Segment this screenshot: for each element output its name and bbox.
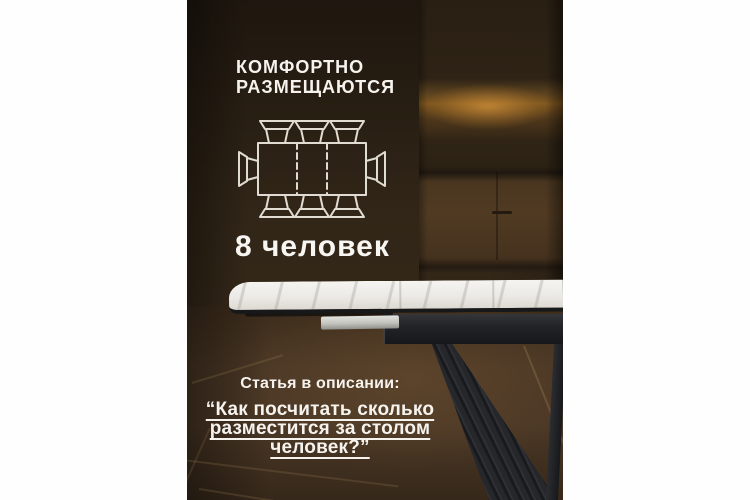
right-margin — [563, 0, 750, 500]
capacity-label: 8 человек — [235, 230, 390, 264]
article-intro: Статья в описании: — [195, 374, 445, 393]
cabinet-panel-seam — [496, 172, 498, 260]
article-quote-line3: человек?” — [195, 438, 445, 457]
article-quote: “Как посчитать сколько разместится за ст… — [195, 400, 445, 457]
article-note: Статья в описании: “Как посчитать скольк… — [195, 374, 445, 457]
headline-line1: КОМФОРТНО — [236, 57, 395, 77]
ceramic-tabletop — [229, 280, 563, 314]
headline-line2: РАЗМЕЩАЮТСЯ — [236, 77, 395, 97]
chair-left — [239, 152, 258, 186]
chairs-top — [260, 121, 364, 143]
article-quote-line2: разместится за столом — [195, 419, 445, 438]
left-margin — [0, 0, 187, 500]
chairs-bottom — [260, 195, 364, 217]
kitchen-cabinet — [419, 0, 563, 314]
table-seating-icon — [237, 119, 387, 219]
poster-canvas: КОМФОРТНО РАЗМЕЩАЮТСЯ — [0, 0, 750, 500]
extension-rail — [321, 315, 399, 329]
article-quote-line1: “Как посчитать сколько — [195, 400, 445, 419]
table-underframe — [383, 314, 563, 344]
headline: КОМФОРТНО РАЗМЕЩАЮТСЯ — [236, 57, 395, 97]
under-cabinet-light — [419, 76, 563, 140]
poster-photo: КОМФОРТНО РАЗМЕЩАЮТСЯ — [187, 0, 563, 500]
table-outline — [258, 143, 366, 195]
cabinet-handle — [492, 211, 512, 214]
chair-right — [366, 152, 385, 186]
